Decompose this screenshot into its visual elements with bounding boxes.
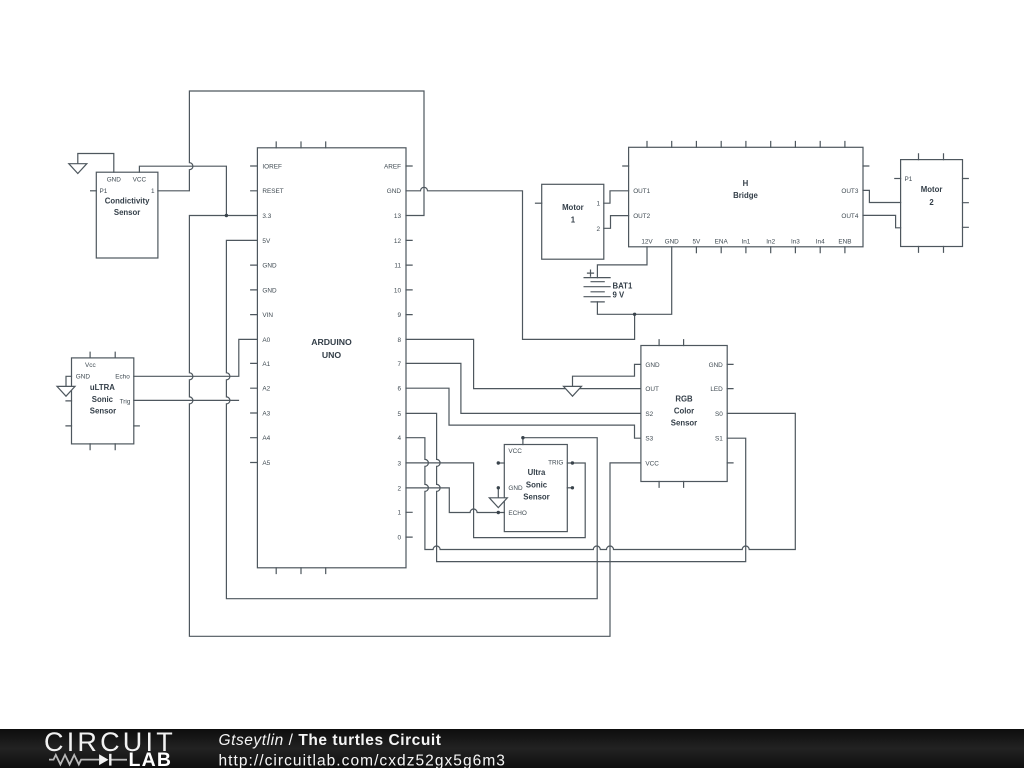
svg-text:VCC: VCC bbox=[508, 448, 522, 455]
svg-text:S3: S3 bbox=[645, 436, 653, 443]
svg-text:10: 10 bbox=[394, 287, 402, 294]
svg-text:A0: A0 bbox=[262, 337, 270, 344]
svg-text:Motor: Motor bbox=[921, 185, 943, 194]
svg-text:3: 3 bbox=[397, 460, 401, 467]
svg-text:S1: S1 bbox=[715, 436, 723, 443]
svg-text:2: 2 bbox=[929, 198, 934, 207]
svg-text:Sonic: Sonic bbox=[526, 480, 548, 489]
svg-text:LAB: LAB bbox=[129, 749, 173, 768]
svg-text:GND: GND bbox=[107, 176, 122, 183]
svg-text:6: 6 bbox=[397, 386, 401, 393]
svg-text:OUT3: OUT3 bbox=[841, 188, 858, 195]
svg-text:P1: P1 bbox=[905, 176, 913, 183]
svg-text:1: 1 bbox=[151, 188, 155, 195]
svg-text:Echo: Echo bbox=[115, 374, 130, 381]
svg-text:AREF: AREF bbox=[384, 163, 401, 170]
svg-text:A5: A5 bbox=[262, 460, 270, 467]
svg-text:ENB: ENB bbox=[838, 238, 851, 245]
svg-text:In1: In1 bbox=[741, 238, 750, 245]
svg-text:IOREF: IOREF bbox=[262, 163, 282, 170]
svg-text:5: 5 bbox=[397, 411, 401, 418]
svg-text:13: 13 bbox=[394, 213, 402, 220]
svg-text:LED: LED bbox=[710, 386, 723, 393]
svg-text:9 V: 9 V bbox=[613, 291, 626, 300]
svg-text:TRIG: TRIG bbox=[548, 460, 563, 467]
svg-text:5V: 5V bbox=[692, 238, 701, 245]
svg-text:A3: A3 bbox=[262, 410, 270, 417]
svg-text:8: 8 bbox=[397, 337, 401, 344]
svg-text:GND: GND bbox=[262, 287, 277, 294]
svg-text:ARDUINO: ARDUINO bbox=[311, 337, 352, 347]
svg-text:9: 9 bbox=[397, 312, 401, 319]
svg-text:ECHO: ECHO bbox=[508, 510, 526, 517]
svg-text:ENA: ENA bbox=[715, 238, 729, 245]
svg-text:GND: GND bbox=[709, 362, 724, 369]
svg-text:Sonic: Sonic bbox=[92, 395, 114, 404]
svg-text:uLTRA: uLTRA bbox=[90, 383, 115, 392]
svg-text:1: 1 bbox=[596, 201, 600, 208]
svg-text:GND: GND bbox=[665, 238, 680, 245]
svg-text:GND: GND bbox=[645, 362, 660, 369]
svg-text:VCC: VCC bbox=[133, 176, 147, 183]
svg-text:UNO: UNO bbox=[322, 350, 342, 360]
svg-text:Sensor: Sensor bbox=[114, 208, 140, 217]
svg-text:http://circuitlab.com/cxdz52gx: http://circuitlab.com/cxdz52gx5g6m3 bbox=[219, 752, 506, 768]
svg-text:A2: A2 bbox=[262, 386, 270, 393]
svg-text:Trig: Trig bbox=[120, 399, 131, 406]
svg-text:GND: GND bbox=[508, 485, 523, 492]
svg-text:A1: A1 bbox=[262, 361, 270, 368]
svg-text:GND: GND bbox=[387, 188, 402, 195]
svg-text:RGB: RGB bbox=[675, 395, 693, 404]
svg-text:1: 1 bbox=[571, 215, 576, 224]
svg-text:4: 4 bbox=[397, 435, 401, 442]
svg-text:3.3: 3.3 bbox=[262, 213, 271, 220]
svg-text:Gtseytlin / The turtles Circui: Gtseytlin / The turtles Circuit bbox=[219, 732, 442, 749]
svg-text:2: 2 bbox=[397, 485, 401, 492]
svg-text:S0: S0 bbox=[715, 411, 723, 418]
svg-text:RESET: RESET bbox=[262, 188, 283, 195]
svg-text:A4: A4 bbox=[262, 435, 270, 442]
svg-text:7: 7 bbox=[397, 361, 401, 368]
svg-text:VIN: VIN bbox=[262, 312, 273, 319]
svg-text:5V: 5V bbox=[262, 238, 271, 245]
svg-text:Condictivity: Condictivity bbox=[105, 197, 150, 206]
svg-text:Bridge: Bridge bbox=[733, 191, 758, 200]
svg-text:12: 12 bbox=[394, 238, 402, 245]
svg-text:Sensor: Sensor bbox=[90, 407, 116, 416]
svg-text:OUT2: OUT2 bbox=[633, 213, 650, 220]
svg-text:OUT1: OUT1 bbox=[633, 188, 650, 195]
svg-text:OUT: OUT bbox=[645, 386, 659, 393]
svg-text:H: H bbox=[743, 179, 749, 188]
svg-text:P1: P1 bbox=[100, 188, 108, 195]
svg-text:In2: In2 bbox=[766, 238, 775, 245]
svg-text:VCC: VCC bbox=[645, 460, 659, 467]
svg-text:0: 0 bbox=[397, 535, 401, 542]
svg-text:11: 11 bbox=[394, 263, 401, 270]
svg-text:Vcc: Vcc bbox=[85, 362, 96, 369]
svg-text:Motor: Motor bbox=[562, 203, 584, 212]
svg-text:Sensor: Sensor bbox=[523, 493, 549, 502]
svg-text:S2: S2 bbox=[645, 411, 653, 418]
svg-text:OUT4: OUT4 bbox=[841, 213, 858, 220]
svg-text:GND: GND bbox=[76, 374, 91, 381]
svg-text:Sensor: Sensor bbox=[671, 419, 697, 428]
svg-text:2: 2 bbox=[596, 226, 600, 233]
svg-text:12V: 12V bbox=[641, 238, 653, 245]
svg-text:Color: Color bbox=[674, 407, 694, 416]
svg-text:In4: In4 bbox=[816, 238, 825, 245]
svg-text:1: 1 bbox=[397, 510, 401, 517]
svg-text:BAT1: BAT1 bbox=[613, 282, 633, 291]
svg-text:In3: In3 bbox=[791, 238, 800, 245]
svg-text:Ultra: Ultra bbox=[528, 468, 546, 477]
svg-text:GND: GND bbox=[262, 263, 277, 270]
